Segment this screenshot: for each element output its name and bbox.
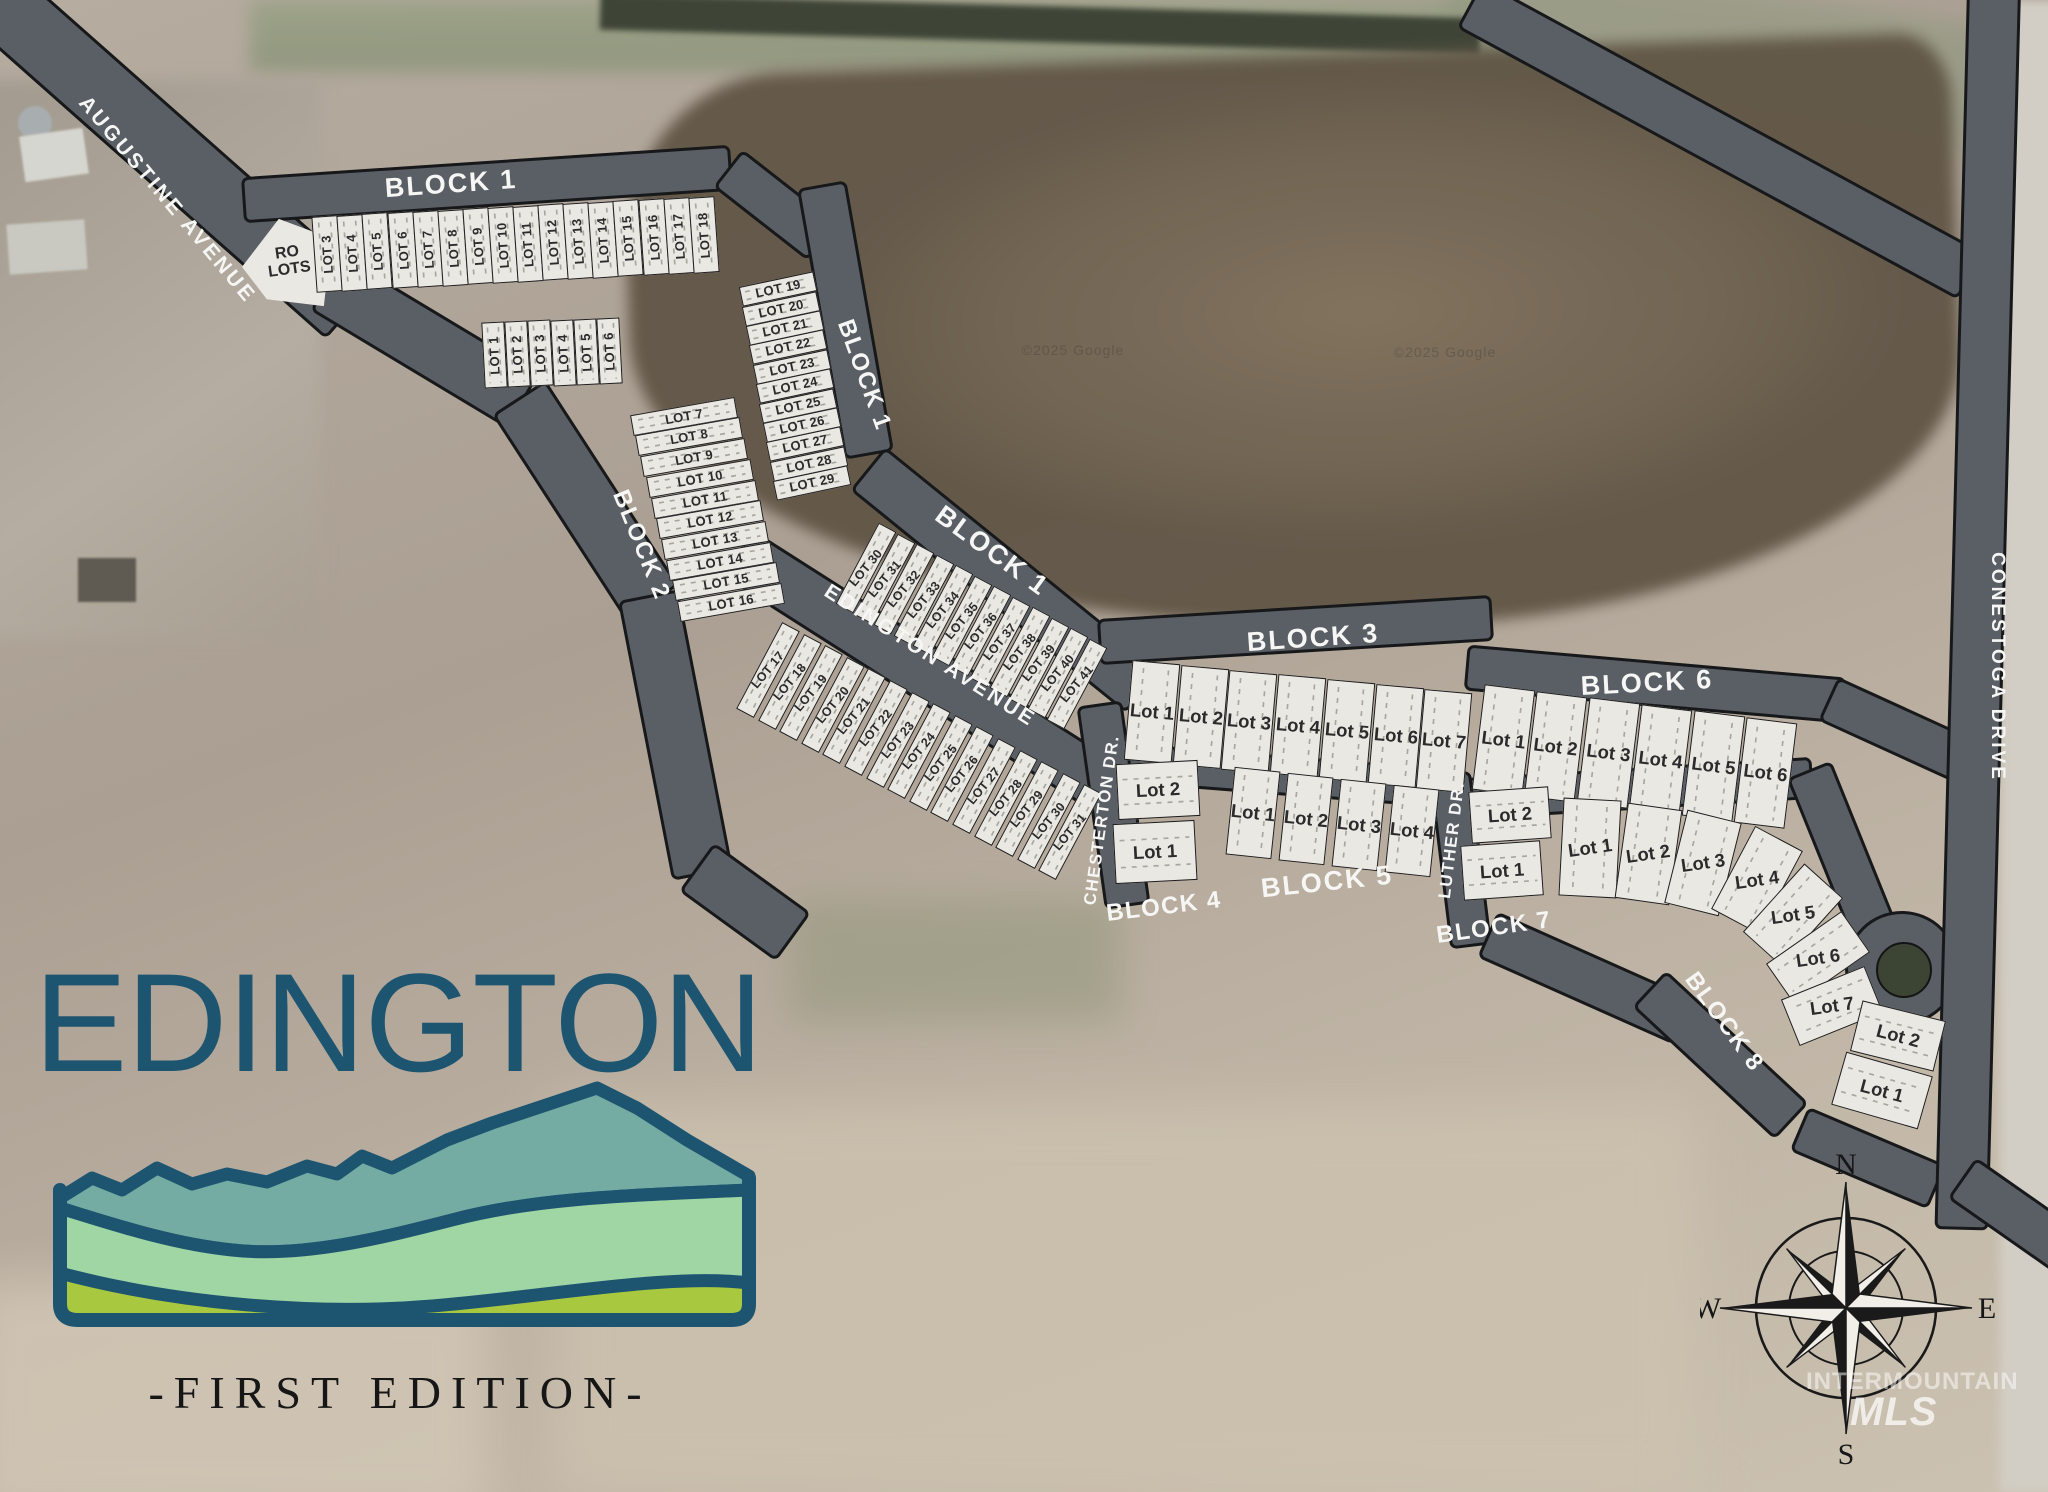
lot-parcel-label: Lot 1 [1480, 726, 1527, 753]
lot-parcel-label: Lot 7 [1421, 728, 1467, 754]
lot-parcel-label: Lot 2 [1487, 802, 1533, 827]
farm-tank [18, 106, 52, 140]
lot-parcel-block5: Lot 3 [1332, 779, 1387, 871]
lot-parcel-label: Lot 4 [1734, 866, 1781, 894]
aerial-top-green-band [250, 0, 1510, 72]
road-block2-west-3 [618, 589, 733, 881]
plat-map: RO LOTS LOT 3LOT 4LOT 5LOT 6LOT 7LOT 8LO… [0, 0, 2048, 1492]
lot-parcel-label: Lot 3 [1585, 739, 1632, 766]
lot-parcel-label: Lot 2 [1135, 778, 1180, 802]
lot-parcel-label: Lot 2 [1283, 806, 1329, 832]
lot-parcel-label: Lot 5 [1770, 901, 1817, 929]
lot-parcel-label: LOT 17 [669, 212, 687, 259]
lot-parcel-label: LOT 5 [578, 332, 595, 371]
lot-parcel-label: LOT 4 [555, 333, 572, 372]
lot-parcel-label: Lot 1 [1230, 800, 1276, 826]
farm-building [78, 558, 136, 602]
road-conestoga-top-diagonal [1457, 0, 1984, 300]
lot-parcel-label: LOT 13 [569, 218, 587, 265]
lot-parcel-block5: Lot 4 [1385, 785, 1440, 877]
lot-parcel-block5: Lot 1 [1226, 767, 1281, 859]
aerial-canal [600, 0, 1481, 54]
lot-parcel-label: Lot 5 [1324, 718, 1370, 744]
lot-parcel-label: Lot 1 [1129, 699, 1175, 725]
lot-parcel-block3: Lot 3 [1221, 670, 1278, 774]
ro-lots-label: RO LOTS [265, 242, 312, 281]
lot-parcel-label: LOT 3 [318, 234, 336, 273]
compass-north-letter: N [1835, 1148, 1857, 1181]
lot-parcel-label: LOT 4 [343, 233, 361, 272]
lot-parcel-label: LOT 2 [509, 335, 526, 374]
lot-parcel-label: Lot 7 [1809, 992, 1856, 1020]
google-watermark: ©2025 Google [1022, 342, 1125, 358]
lot-parcel-block3: Lot 4 [1270, 674, 1327, 778]
lot-parcel-label: Lot 1 [1479, 857, 1525, 882]
street-label-conestoga: CONESTOGA DRIVE [1986, 552, 2008, 782]
lot-parcel-label: Lot 2 [1625, 840, 1672, 868]
lot-parcel-block2_row: LOT 2 [504, 321, 530, 388]
lot-parcel-label: LOT 3 [532, 334, 549, 373]
lot-parcel-block3: Lot 5 [1319, 679, 1376, 783]
compass-east-letter: E [1978, 1292, 1996, 1325]
lot-parcel-label: Lot 6 [1373, 723, 1419, 749]
subdivision-edition: -FIRST EDITION- [120, 1366, 680, 1419]
lot-parcel-label: LOT 11 [519, 221, 537, 267]
lot-parcel-label: LOT 12 [544, 219, 562, 266]
lot-parcel-label: Lot 1 [1858, 1074, 1906, 1107]
lot-parcel-block3: Lot 7 [1416, 689, 1473, 793]
lot-parcel-block8_fan: Lot 1 [1558, 798, 1621, 899]
lot-parcel-label: LOT 6 [393, 230, 411, 269]
lot-parcel-label: LOT 14 [594, 216, 612, 263]
aerial-mid-green [790, 900, 1120, 1020]
lot-parcel-label: LOT 6 [601, 331, 618, 370]
lot-parcel-block3: Lot 1 [1124, 660, 1181, 764]
lot-parcel-label: Lot 1 [1132, 840, 1177, 864]
farm-building [6, 219, 87, 274]
mls-watermark-line2: MLS [1850, 1390, 2019, 1435]
lot-parcel-block2_row: LOT 3 [527, 320, 553, 387]
lot-parcel-label: LOT 15 [619, 215, 637, 262]
lot-parcel-label: Lot 3 [1680, 849, 1727, 877]
lot-parcel-block3: Lot 2 [1172, 665, 1229, 769]
lot-parcel-label: Lot 6 [1742, 759, 1789, 786]
mls-watermark: INTERMOUNTAIN MLS [1806, 1368, 2019, 1435]
lot-parcel-label: Lot 4 [1637, 746, 1684, 773]
lot-parcel-label: LOT 9 [469, 227, 487, 266]
lot-parcel-label: Lot 3 [1226, 709, 1272, 735]
lot-parcel-label: Lot 4 [1275, 714, 1321, 740]
lot-parcel-block4: Lot 1 [1112, 820, 1197, 884]
mountain-logo [52, 1078, 757, 1333]
lot-parcel-label: Lot 2 [1874, 1020, 1922, 1053]
lot-parcel-label: LOT 18 [694, 211, 712, 258]
lot-parcel-label: Lot 2 [1532, 733, 1579, 760]
lot-parcel-label: Lot 2 [1178, 704, 1224, 730]
compass-south-letter: S [1838, 1438, 1855, 1468]
lot-parcel-block5: Lot 2 [1279, 773, 1334, 865]
lot-parcel-block7: Lot 2 [1468, 786, 1551, 843]
lot-parcel-label: Lot 6 [1795, 944, 1842, 972]
lot-parcel-label: Lot 3 [1336, 812, 1382, 838]
lot-parcel-label: Lot 5 [1690, 752, 1737, 779]
lot-parcel-label: LOT 7 [419, 229, 437, 268]
farm-building [19, 128, 89, 182]
lot-parcel-label: LOT 1 [486, 335, 503, 374]
lot-parcel-block1_top: LOT 18 [688, 196, 719, 274]
lot-parcel-block4: Lot 2 [1116, 760, 1201, 820]
lot-parcel-block6: Lot 6 [1734, 717, 1798, 828]
lot-parcel-label: LOT 10 [494, 221, 512, 268]
lot-parcel-block7: Lot 1 [1460, 840, 1544, 900]
lot-parcel-label: LOT 9 [674, 447, 714, 468]
lot-parcel-label: Lot 1 [1567, 834, 1614, 862]
lot-parcel-label: LOT 8 [444, 228, 462, 267]
block5-label: BLOCK 5 [1259, 860, 1394, 905]
road-conestoga-drive [1935, 0, 2022, 1230]
lot-parcel-label: LOT 16 [644, 214, 662, 261]
lot-parcel-block2_row: LOT 1 [481, 321, 507, 388]
lot-parcel-label: LOT 16 [707, 591, 755, 614]
lot-parcel-block3: Lot 6 [1367, 684, 1424, 788]
google-watermark: ©2025 Google [1394, 344, 1497, 360]
compass-west-letter: W [1700, 1292, 1722, 1325]
lot-parcel-label: LOT 5 [368, 232, 386, 271]
lot-parcel-block2_row: LOT 6 [596, 317, 622, 384]
lot-parcel-block2_row: LOT 5 [573, 318, 599, 385]
lot-parcel-label: Lot 4 [1389, 818, 1435, 844]
lot-parcel-block2_row: LOT 4 [550, 319, 576, 386]
